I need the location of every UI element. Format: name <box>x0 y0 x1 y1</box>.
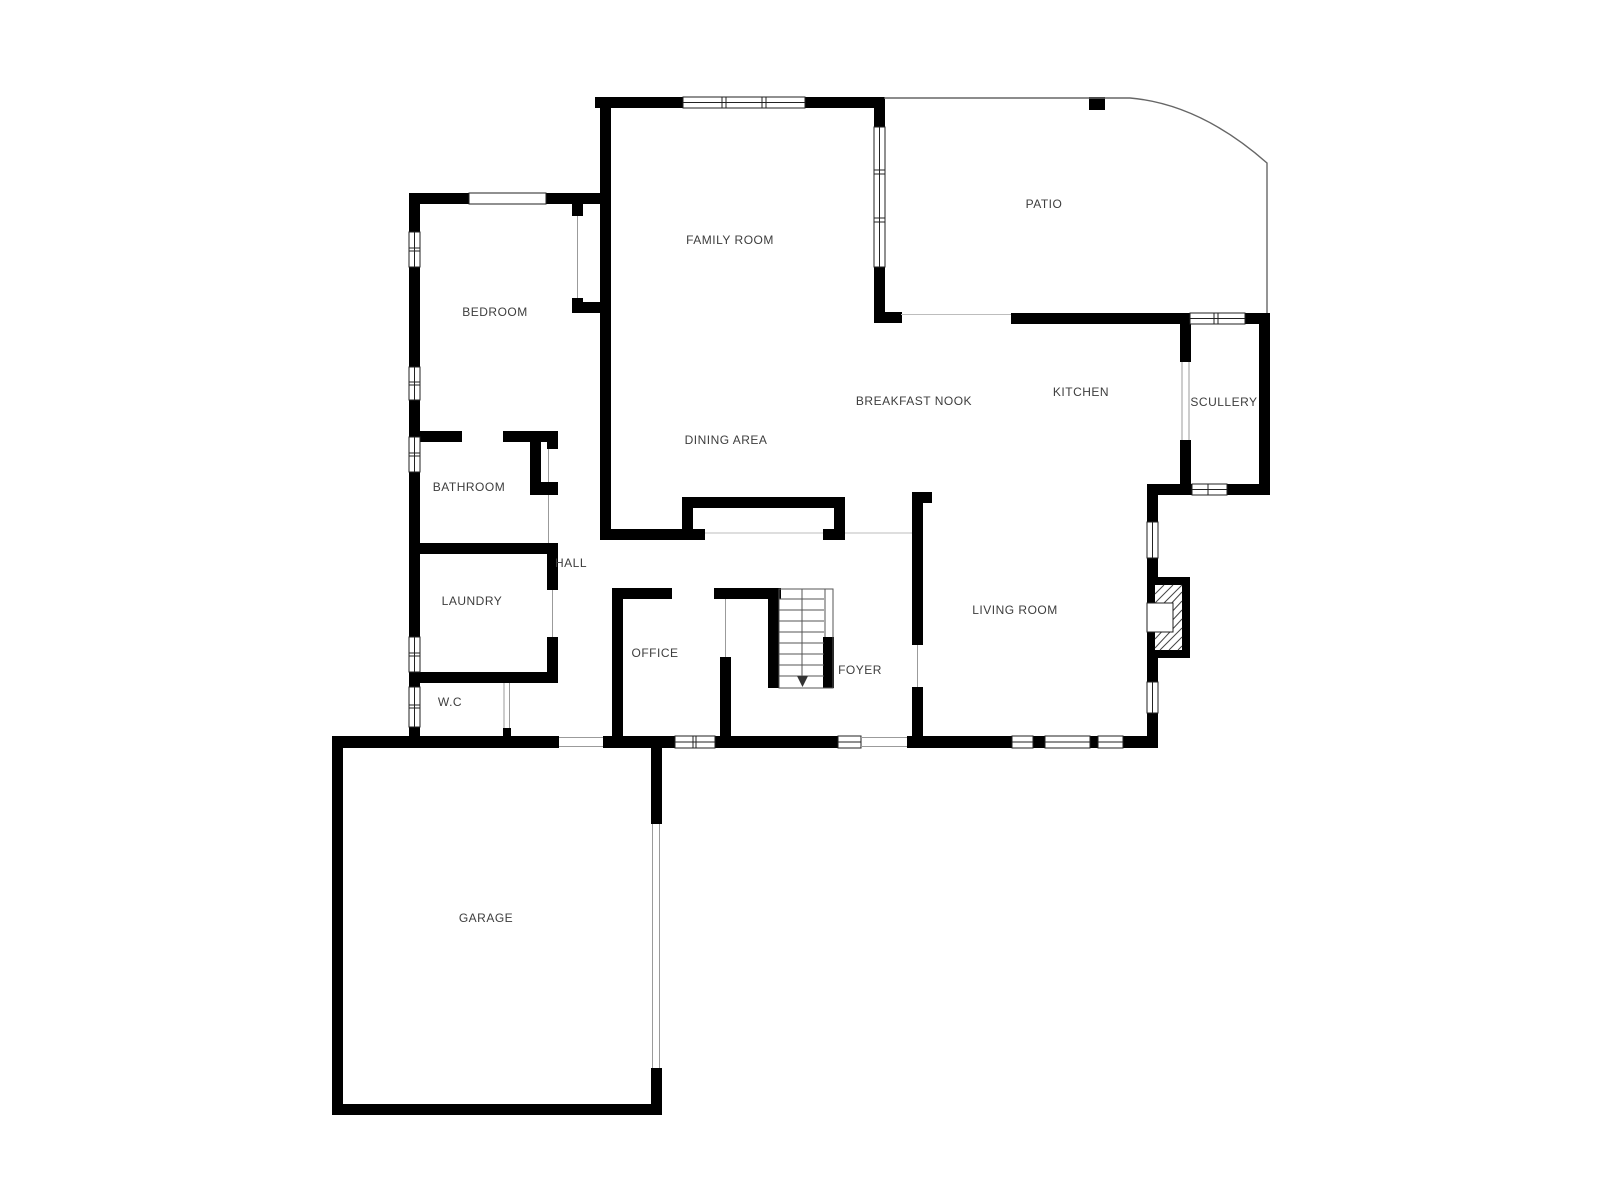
room-label-scullery: SCULLERY <box>1190 395 1257 409</box>
window-symbol <box>1190 313 1245 324</box>
room-label-dining-area: DINING AREA <box>685 433 768 447</box>
room-label-bathroom: BATHROOM <box>433 480 505 494</box>
window-symbol <box>409 232 420 267</box>
window-symbol <box>1147 522 1158 558</box>
room-label-wc: W.C <box>438 695 462 709</box>
room-label-office: OFFICE <box>632 646 679 660</box>
room-label-breakfast-nook: BREAKFAST NOOK <box>856 394 972 408</box>
room-label-foyer: FOYER <box>838 663 882 677</box>
firebox <box>1147 603 1173 632</box>
window-symbol <box>838 736 861 748</box>
window-symbol <box>469 193 546 204</box>
window-symbol <box>409 437 420 472</box>
room-label-hall: HALL <box>555 556 587 570</box>
window-symbol <box>1147 682 1158 713</box>
room-label-kitchen: KITCHEN <box>1053 385 1109 399</box>
floor-plan-page: FAMILY ROOM PATIO BEDROOM BREAKFAST NOOK… <box>0 0 1600 1200</box>
window-symbol <box>1192 484 1227 495</box>
window-symbol <box>1012 736 1033 748</box>
window-symbol <box>409 687 420 727</box>
room-label-laundry: LAUNDRY <box>442 594 503 608</box>
room-labels: FAMILY ROOM PATIO BEDROOM BREAKFAST NOOK… <box>433 197 1258 925</box>
stairs-down-arrow-icon <box>797 676 808 687</box>
window-symbol <box>1045 736 1090 748</box>
window-symbol <box>409 637 420 672</box>
room-label-garage: GARAGE <box>459 911 513 925</box>
floor-plan-canvas: FAMILY ROOM PATIO BEDROOM BREAKFAST NOOK… <box>0 0 1600 1200</box>
room-label-bedroom: BEDROOM <box>462 305 528 319</box>
room-label-patio: PATIO <box>1026 197 1063 211</box>
patio-post <box>1089 97 1105 110</box>
window-symbol <box>1098 736 1123 748</box>
window-symbol <box>409 367 420 400</box>
window-symbol <box>874 127 885 267</box>
fireplace <box>1147 577 1190 658</box>
window-symbol <box>675 736 715 748</box>
patio-boundary <box>884 98 1267 315</box>
room-label-family-room: FAMILY ROOM <box>686 233 774 247</box>
window-symbol <box>683 97 805 108</box>
room-label-living-room: LIVING ROOM <box>972 603 1058 617</box>
